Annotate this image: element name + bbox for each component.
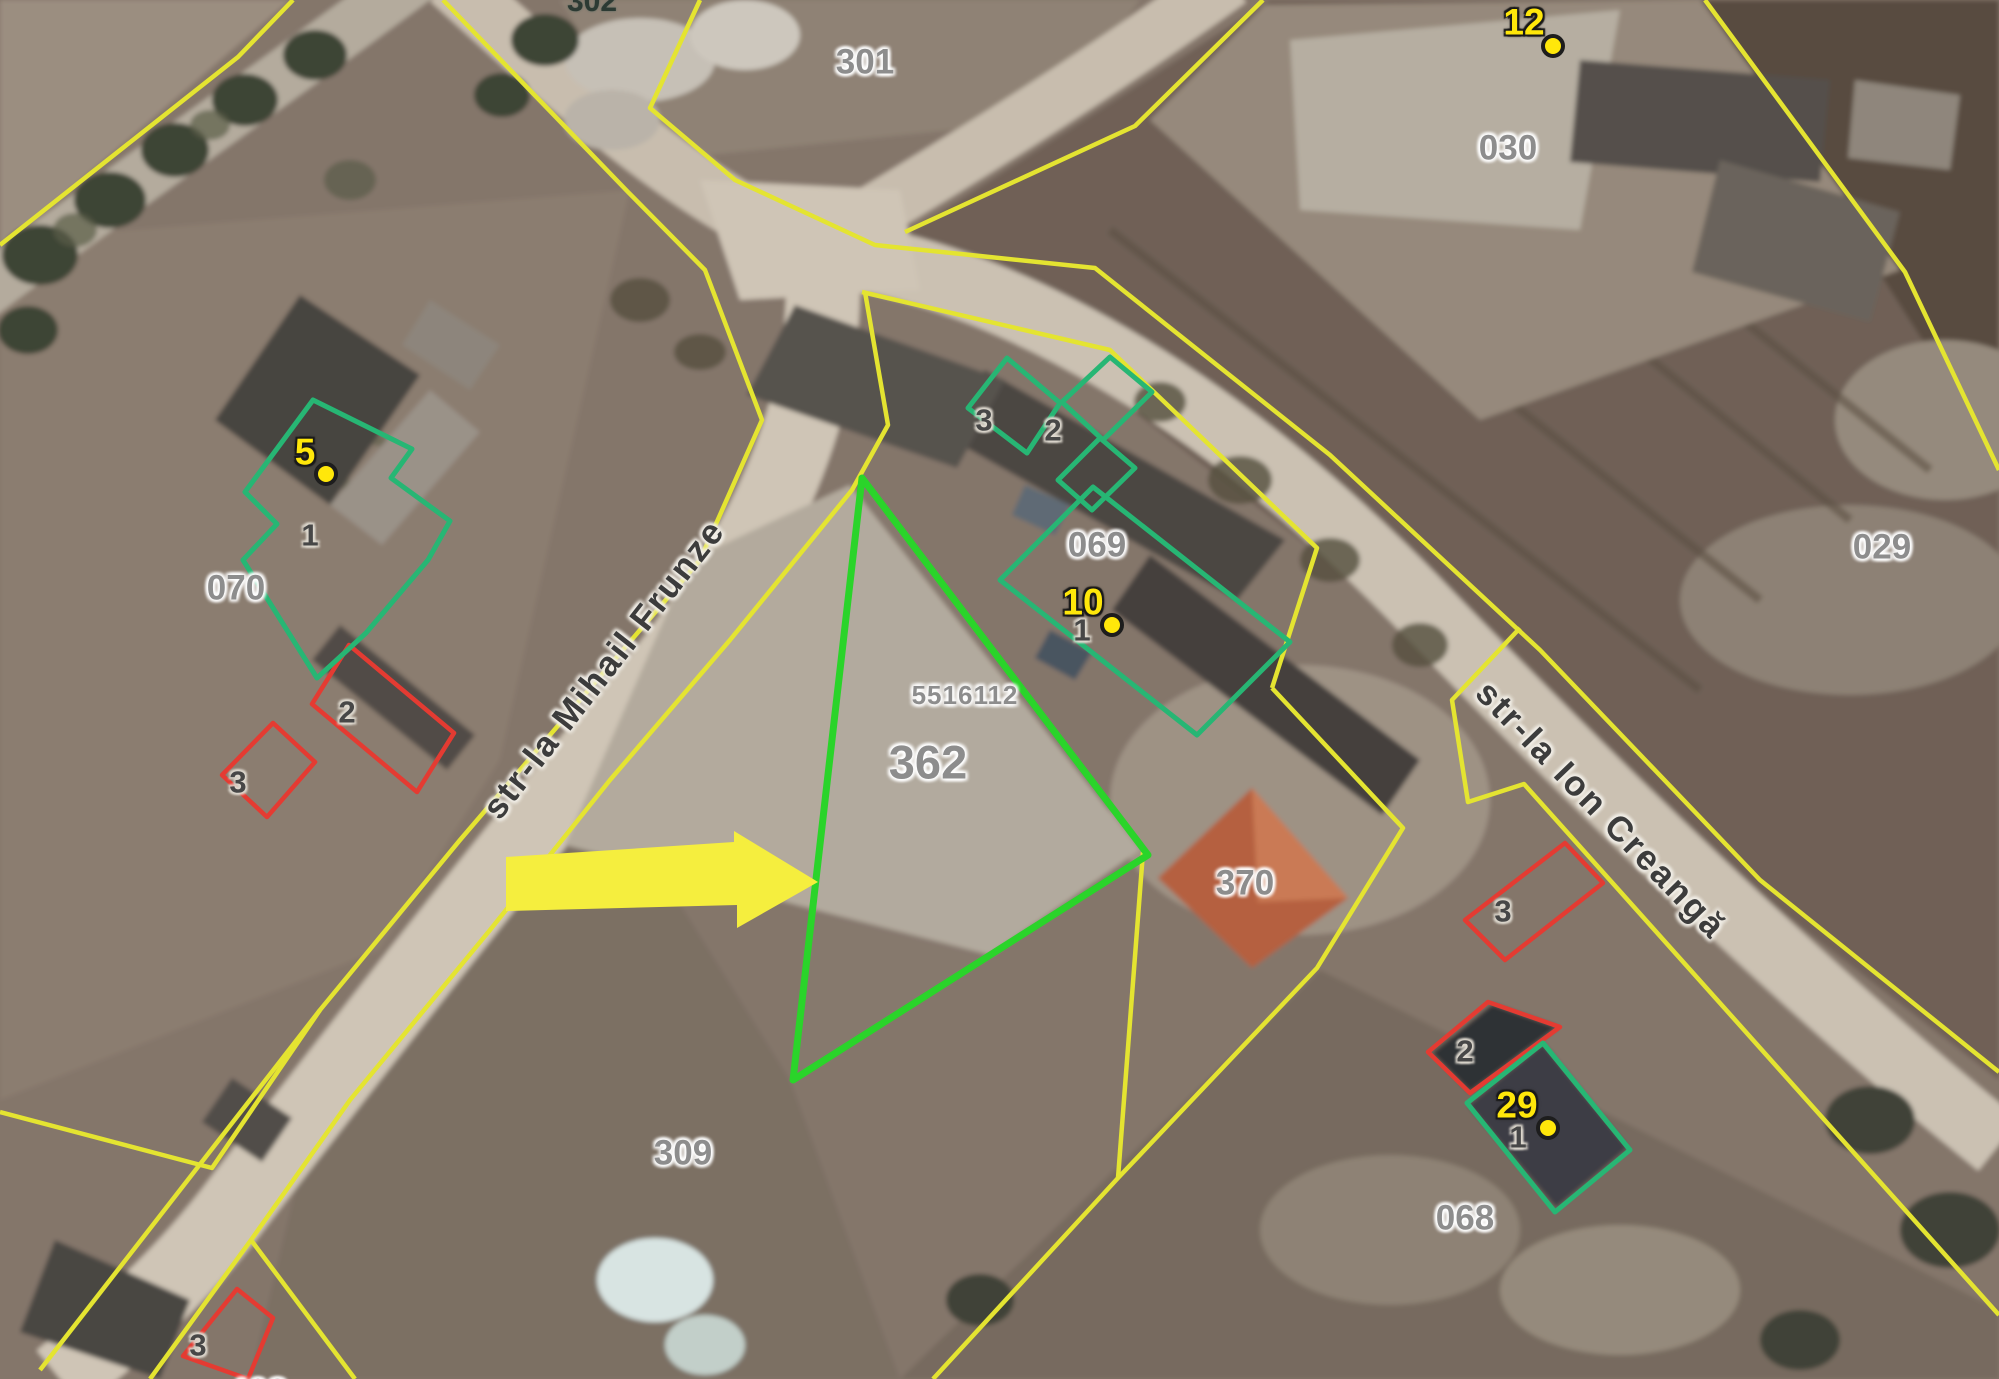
building-number-label: 1 (301, 520, 318, 551)
parcel-boundary-line (150, 292, 888, 1379)
parcel-label-302: 302 (567, 0, 617, 17)
highlight-arrow (506, 831, 818, 928)
address-number-label: 5 (295, 434, 316, 471)
building-outline (243, 400, 450, 678)
parcel-label-070: 070 (207, 571, 265, 606)
parcel-label-068: 068 (1436, 1201, 1494, 1236)
building-number-label: 2 (1044, 415, 1061, 446)
parcel-boundary-line (251, 1240, 355, 1379)
selected-parcel-boundary[interactable] (793, 478, 1148, 1080)
building-number-label: 3 (189, 1330, 206, 1361)
address-number-label: 10 (1062, 584, 1103, 621)
building-outline-red (1465, 843, 1603, 960)
building-outline (1058, 438, 1135, 510)
parcel-label-5516112: 5516112 (912, 682, 1019, 708)
building-outline (1062, 357, 1152, 440)
building-outline (1000, 487, 1290, 735)
parcel-label-069: 069 (1068, 528, 1126, 563)
parcel-label-370: 370 (1216, 866, 1274, 901)
address-point-dot[interactable] (1536, 1116, 1560, 1140)
building-number-label: 2 (1456, 1036, 1473, 1067)
address-number-label: 12 (1503, 4, 1544, 41)
building-outline-red (312, 645, 454, 792)
parcel-label-309: 309 (654, 1136, 712, 1171)
parcel-label-030: 030 (1479, 131, 1537, 166)
parcel-label-029: 029 (1853, 530, 1911, 565)
parcel-label-301: 301 (836, 45, 894, 80)
parcel-label-408: 408 (229, 1375, 287, 1379)
parcel-boundary-line (0, 1010, 320, 1168)
parcel-boundary-line (0, 0, 293, 245)
building-number-label: 3 (1494, 896, 1511, 927)
address-number-label: 29 (1496, 1087, 1537, 1124)
address-point-dot[interactable] (1100, 613, 1124, 637)
building-number-label: 2 (338, 697, 355, 728)
building-number-label: 3 (975, 405, 992, 436)
parcel-boundary-line (1705, 0, 1999, 470)
parcel-label-362: 362 (889, 739, 967, 786)
address-point-dot[interactable] (1541, 34, 1565, 58)
address-point-dot[interactable] (314, 462, 338, 486)
building-number-label: 3 (229, 767, 246, 798)
parcel-boundary-line (905, 0, 1263, 232)
map-canvas[interactable]: 3013020300290700695516112362370309068408… (0, 0, 1999, 1379)
building-number-label: 1 (1509, 1122, 1526, 1153)
parcel-boundary-line (1118, 852, 1143, 1178)
